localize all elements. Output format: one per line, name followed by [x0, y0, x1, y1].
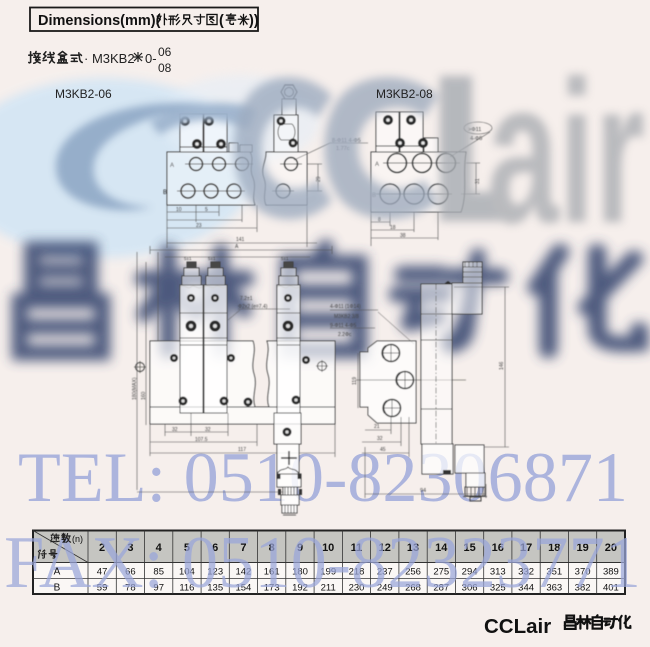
svg-text:0-: 0- — [145, 51, 157, 66]
svg-text:· M3KB2: · M3KB2 — [84, 51, 135, 66]
svg-text:23: 23 — [196, 223, 202, 229]
svg-text:18: 18 — [390, 225, 396, 231]
svg-text:5±1: 5±1 — [281, 256, 289, 261]
svg-text:146: 146 — [499, 361, 505, 370]
svg-text:B: B — [163, 190, 167, 196]
svg-text:06: 06 — [158, 45, 172, 59]
svg-text:B: B — [54, 583, 61, 594]
svg-text:107.5: 107.5 — [195, 437, 208, 443]
svg-text:94: 94 — [420, 488, 426, 494]
svg-text:119: 119 — [352, 377, 358, 385]
svg-text:08: 08 — [158, 61, 172, 75]
svg-text:)): )) — [249, 13, 259, 29]
svg-text:5±1: 5±1 — [184, 256, 192, 261]
svg-text:A: A — [375, 162, 379, 168]
svg-text:5: 5 — [205, 207, 208, 213]
svg-text:38: 38 — [400, 233, 406, 239]
svg-text:air: air — [487, 39, 645, 266]
svg-text:CCLair: CCLair — [484, 615, 551, 638]
svg-text:32: 32 — [205, 427, 211, 433]
svg-text:32: 32 — [172, 427, 178, 433]
svg-text:21: 21 — [374, 424, 380, 430]
svg-text:A: A — [170, 163, 174, 169]
svg-text:(n): (n) — [72, 534, 83, 544]
svg-text:A: A — [54, 567, 61, 578]
svg-text:10: 10 — [176, 207, 182, 213]
svg-text:31: 31 — [475, 178, 481, 184]
svg-text:32: 32 — [377, 436, 383, 442]
svg-text:M3KB2-08: M3KB2-08 — [376, 87, 433, 101]
svg-text:FAX: 0510-82323771: FAX: 0510-82323771 — [4, 522, 641, 604]
svg-text:2.2Φc: 2.2Φc — [338, 332, 352, 338]
svg-text:4-Φ11 (1Φ14): 4-Φ11 (1Φ14) — [330, 304, 361, 310]
svg-text:Dimensions(mm)(: Dimensions(mm)( — [38, 13, 161, 29]
svg-text:141: 141 — [236, 237, 245, 243]
svg-text:TEL: 0510-82306871: TEL: 0510-82306871 — [18, 439, 628, 517]
svg-text:(: ( — [219, 13, 224, 29]
svg-text:M3KB2 3/8: M3KB2 3/8 — [334, 314, 359, 320]
svg-text:45: 45 — [380, 447, 386, 453]
svg-text:M3KB2-06: M3KB2-06 — [55, 87, 112, 101]
svg-text:117: 117 — [238, 447, 246, 453]
svg-text:160: 160 — [141, 391, 147, 400]
svg-text:180(MAX): 180(MAX) — [132, 377, 138, 400]
svg-text:5±1: 5±1 — [208, 256, 216, 261]
svg-text:7.2±1: 7.2±1 — [240, 296, 253, 302]
